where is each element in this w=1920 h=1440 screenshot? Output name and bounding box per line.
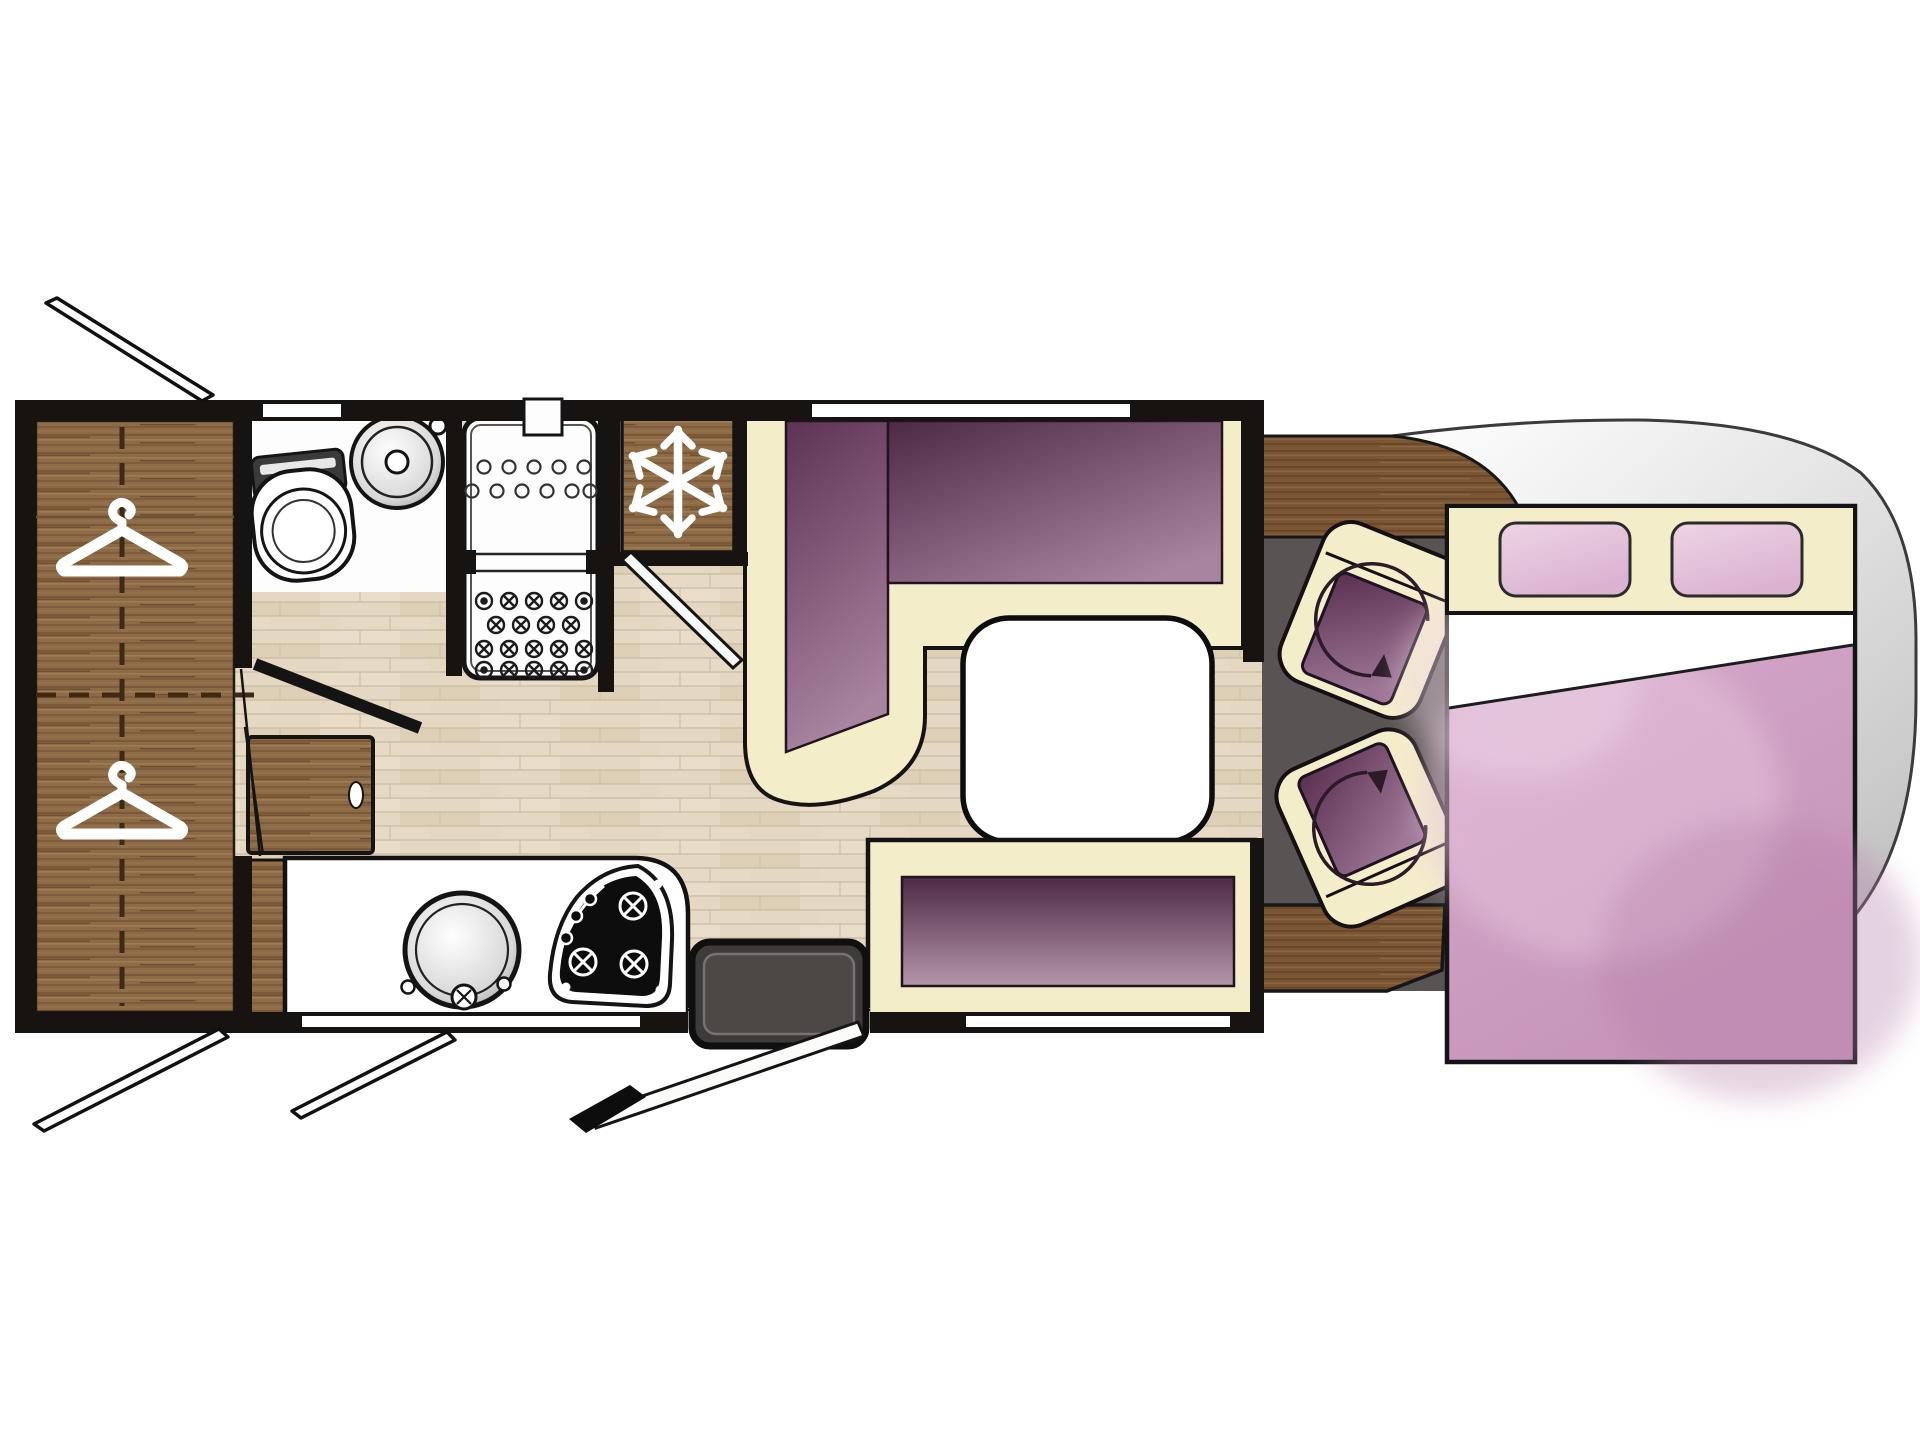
bed-pillow: [1672, 523, 1802, 596]
cab-section: [1262, 420, 1920, 1100]
dinette-cushion-vertical: [786, 421, 888, 752]
bed-pillow: [1500, 523, 1630, 596]
shower-inlet-fitting: [524, 399, 562, 435]
kitchen-unit: [243, 858, 688, 1016]
refrigerator: [622, 412, 734, 552]
dinette-table: [963, 618, 1212, 842]
washbasin: [351, 416, 446, 508]
roof-flap-bottom-left: [34, 1029, 228, 1131]
washroom: [246, 416, 446, 592]
roof-flap-top-left: [46, 298, 213, 401]
floorplan-page: [0, 0, 1920, 1440]
drop-down-bed: [1400, 506, 1920, 1100]
shower-cabin: [464, 418, 598, 678]
dinette-cushion-top: [888, 421, 1222, 583]
hall-desk: [245, 727, 373, 855]
dinette-bench: [868, 840, 1255, 1016]
roof-flap-bottom-center: [292, 1032, 455, 1118]
toilet: [246, 448, 359, 585]
floorplan-canvas: [0, 0, 1920, 1440]
